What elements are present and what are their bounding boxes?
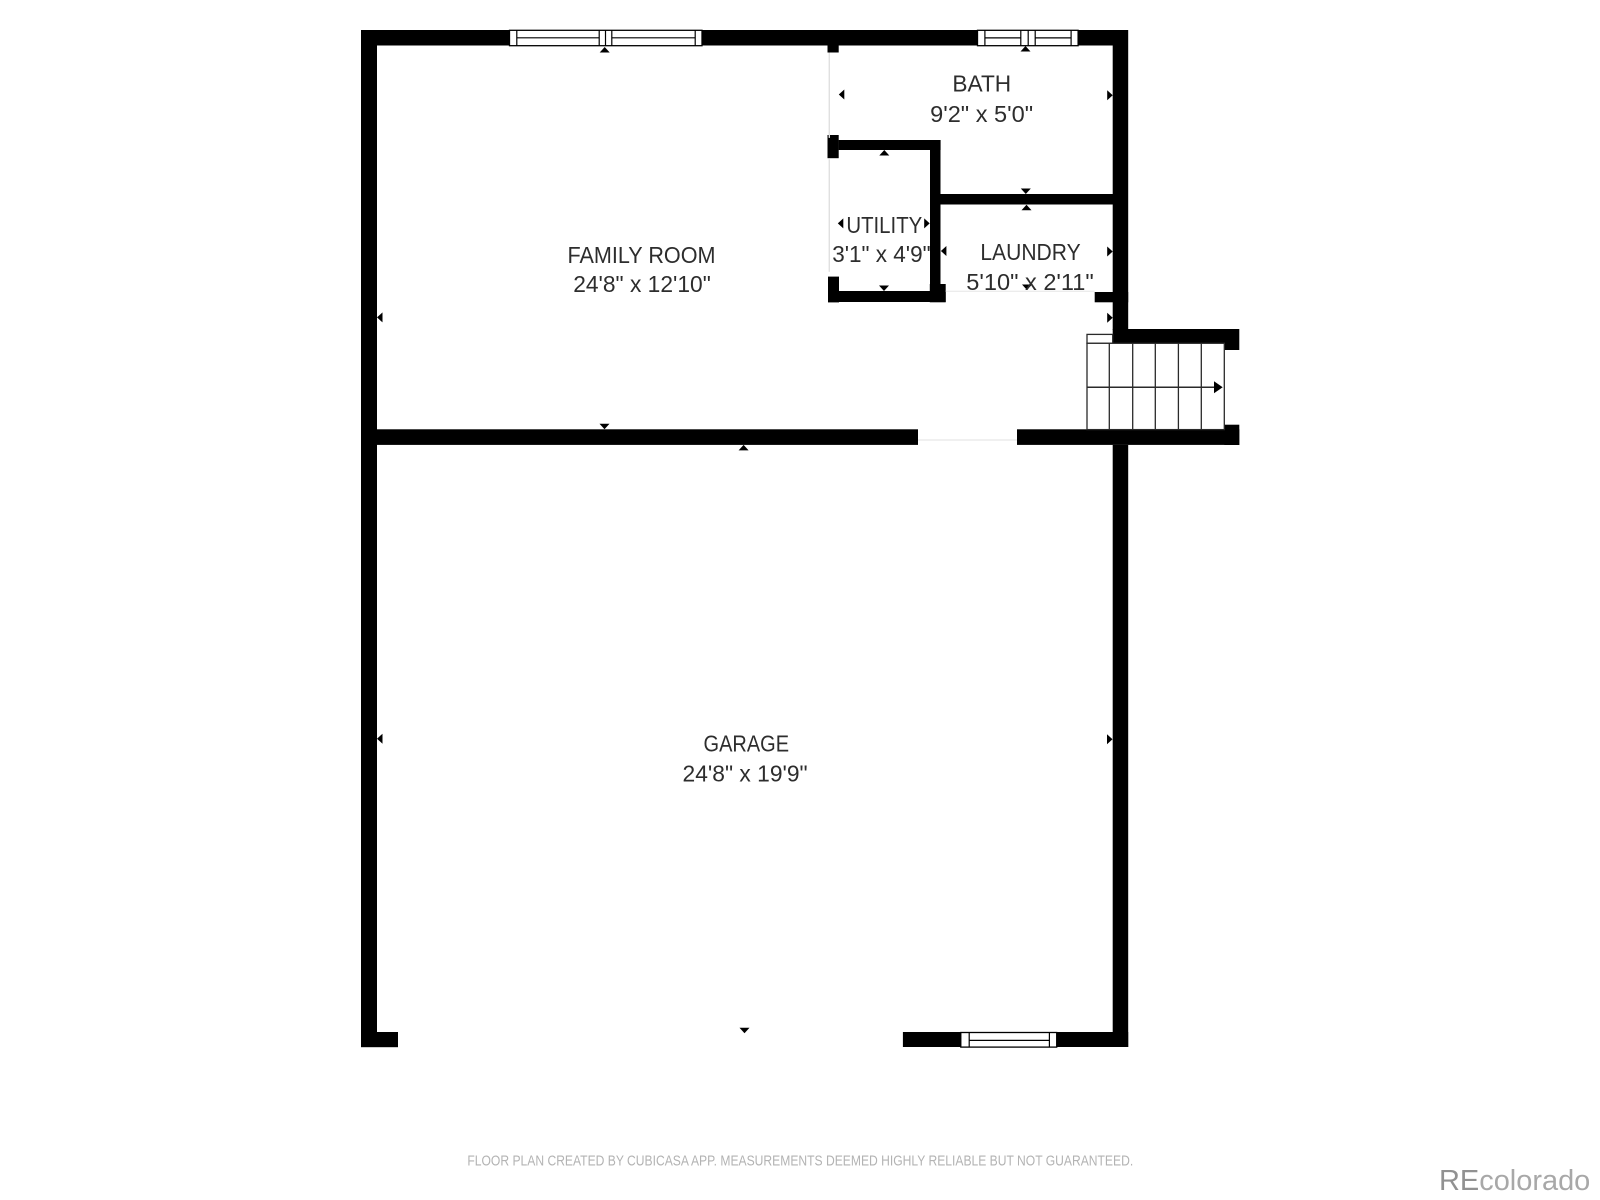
svg-text:FAMILY ROOM: FAMILY ROOM: [568, 242, 716, 268]
svg-text:3'1" x 4'9": 3'1" x 4'9": [832, 241, 930, 267]
svg-text:9'2" x 5'0": 9'2" x 5'0": [930, 101, 1033, 127]
svg-text:GARAGE: GARAGE: [704, 731, 790, 757]
svg-text:24'8" x 19'9": 24'8" x 19'9": [683, 760, 808, 786]
svg-text:REcolorado: REcolorado: [1439, 1165, 1590, 1197]
svg-text:24'8" x 12'10": 24'8" x 12'10": [573, 271, 711, 297]
svg-text:5'10" x 2'11": 5'10" x 2'11": [966, 269, 1094, 295]
svg-text:LAUNDRY: LAUNDRY: [980, 239, 1081, 265]
svg-text:FLOOR PLAN CREATED BY CUBICASA: FLOOR PLAN CREATED BY CUBICASA APP. MEAS…: [467, 1154, 1133, 1170]
svg-text:UTILITY: UTILITY: [846, 212, 922, 238]
svg-text:BATH: BATH: [952, 71, 1011, 97]
